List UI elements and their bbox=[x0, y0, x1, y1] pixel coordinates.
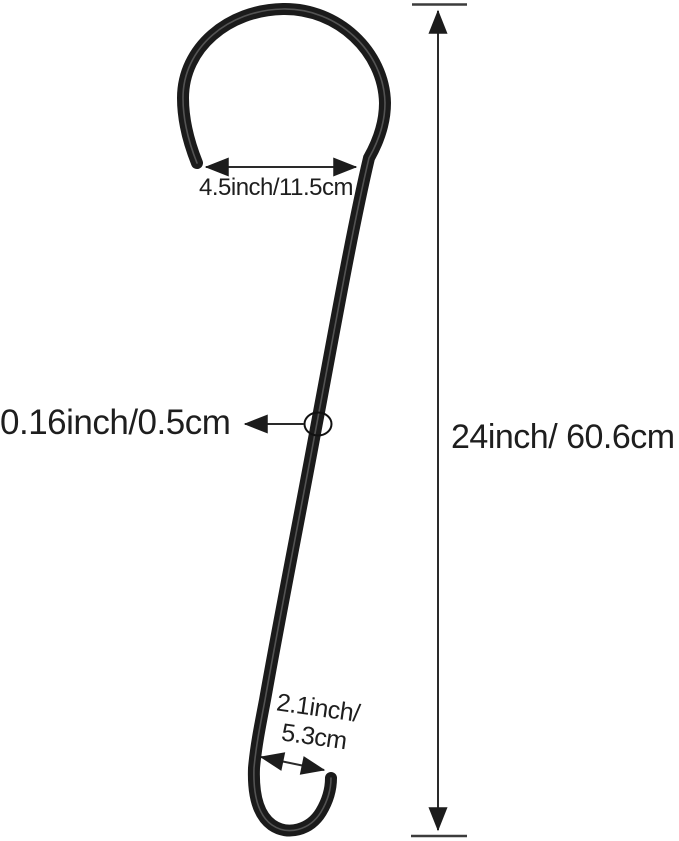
top-hook-width-label: 4.5inch/11.5cm bbox=[186, 174, 366, 202]
overall-height-label: 24inch/ 60.6cm bbox=[451, 418, 675, 457]
bottom-width-arrow bbox=[261, 757, 324, 770]
wire-thickness-label: 0.16inch/0.5cm bbox=[0, 403, 230, 443]
product-dimension-diagram: 4.5inch/11.5cm 0.16inch/0.5cm 24inch/ 60… bbox=[0, 0, 679, 841]
